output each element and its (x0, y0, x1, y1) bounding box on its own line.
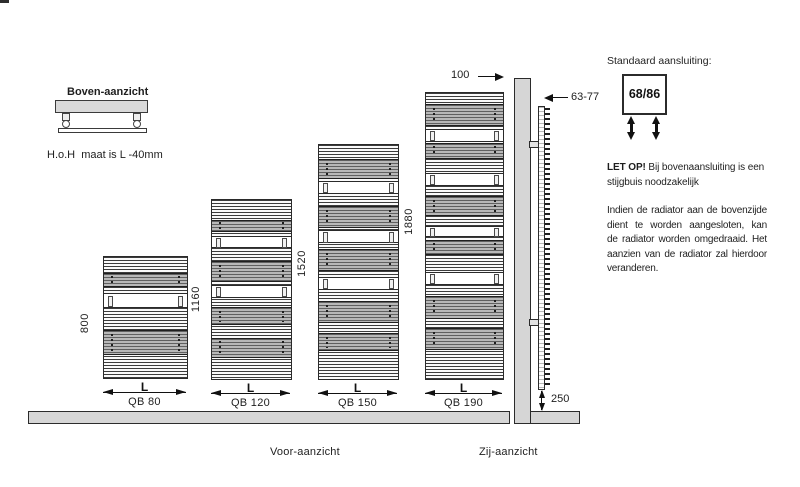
hoh-note: H.o.H maat is L -40mm (47, 149, 163, 161)
towel-gap (319, 230, 398, 243)
model-label: QB 190 (425, 397, 502, 409)
slat-band (426, 104, 503, 125)
description-line: veranderen. (607, 262, 767, 277)
radiator-front-view (211, 199, 292, 380)
towel-gap (426, 226, 503, 237)
slat-band (319, 159, 398, 179)
notice-line2: stijgbuis noodzakelijk (607, 175, 764, 190)
notice-bold-text: LET OP! (607, 162, 646, 173)
model-label: QB 80 (103, 396, 186, 408)
model-label: QB 120 (211, 397, 290, 409)
scan-artifact (0, 0, 9, 3)
towel-gap (212, 285, 291, 298)
description-line: dient te worden aangesloten, kan (607, 219, 767, 234)
slat-band (104, 330, 187, 355)
front-view-caption: Voor-aanzicht (270, 446, 340, 458)
slat-band (426, 296, 503, 319)
slat-band (319, 333, 398, 351)
slat-band (426, 240, 503, 254)
slat-band (319, 249, 398, 271)
arrow-right-icon (478, 76, 495, 77)
side-view-caption: Zij-aanzicht (479, 446, 538, 458)
connection-flow-arrow-right (655, 124, 658, 132)
height-dimension-label: 1520 (296, 250, 308, 277)
width-dimension-arrow (211, 393, 290, 394)
connection-heading: Standaard aansluiting: (607, 55, 712, 67)
slat-band (212, 307, 291, 325)
depth-range-label: 63-77 (571, 91, 599, 103)
towel-gap (212, 236, 291, 249)
radiator-front-view (318, 144, 399, 380)
slat-band (426, 143, 503, 159)
description-line: de radiator worden omgedraaid. Het (607, 233, 767, 248)
slat-band (212, 261, 291, 282)
height-dimension-label: 1880 (403, 208, 415, 235)
slat-band (212, 220, 291, 233)
model-label: QB 150 (318, 397, 397, 409)
top-view-wall-rail (58, 128, 147, 133)
top-view-right-valve (133, 120, 141, 128)
slat-band (212, 338, 291, 358)
width-dimension-arrow (103, 392, 186, 393)
slat-band (426, 196, 503, 216)
side-view-wall (514, 78, 531, 423)
slat-band (319, 301, 398, 323)
towel-gap (104, 293, 187, 308)
radiator-side-profile (538, 106, 545, 390)
towel-gap (319, 181, 398, 194)
height-dimension-label: 1160 (190, 286, 202, 312)
top-view-left-valve (62, 120, 70, 128)
radiator-front-view (425, 92, 504, 380)
front-view-floor (28, 411, 510, 424)
top-offset-label: 100 (451, 69, 469, 81)
slat-band (426, 328, 503, 351)
wall-bracket-bottom (529, 319, 539, 326)
arrow-left-icon (553, 97, 568, 98)
towel-gap (426, 272, 503, 285)
description-block: Indien de radiator aan de bovenzijde die… (607, 204, 767, 277)
connection-size-box: 68/86 (622, 74, 667, 115)
towel-gap (426, 173, 503, 186)
slat-band (104, 273, 187, 288)
height-dimension-label: 800 (79, 313, 91, 333)
radiator-front-view (103, 256, 188, 379)
bottom-clearance-arrow (541, 391, 542, 410)
technical-drawing-canvas: Boven-aanzicht H.o.H maat is L -40mm L Q… (0, 0, 800, 487)
wall-bracket-top (529, 141, 539, 148)
notice-block: LET OP! Bij bovenaansluiting is een stij… (607, 160, 764, 190)
side-profile-slat-ticks (545, 108, 550, 386)
slat-band (319, 206, 398, 228)
width-dimension-arrow (318, 393, 397, 394)
top-view-title: Boven-aanzicht (67, 86, 148, 98)
description-line: aanzien van de radiator zal hierdoor (607, 248, 767, 263)
connection-flow-arrow-left (630, 124, 633, 132)
towel-gap (426, 129, 503, 142)
notice-line1-rest: Bij bovenaansluiting is een (646, 162, 764, 173)
top-view-radiator-bar (55, 100, 148, 113)
width-dimension-arrow (425, 393, 502, 394)
description-line: Indien de radiator aan de bovenzijde (607, 204, 767, 219)
towel-gap (319, 277, 398, 290)
bottom-clearance-label: 250 (551, 393, 569, 405)
